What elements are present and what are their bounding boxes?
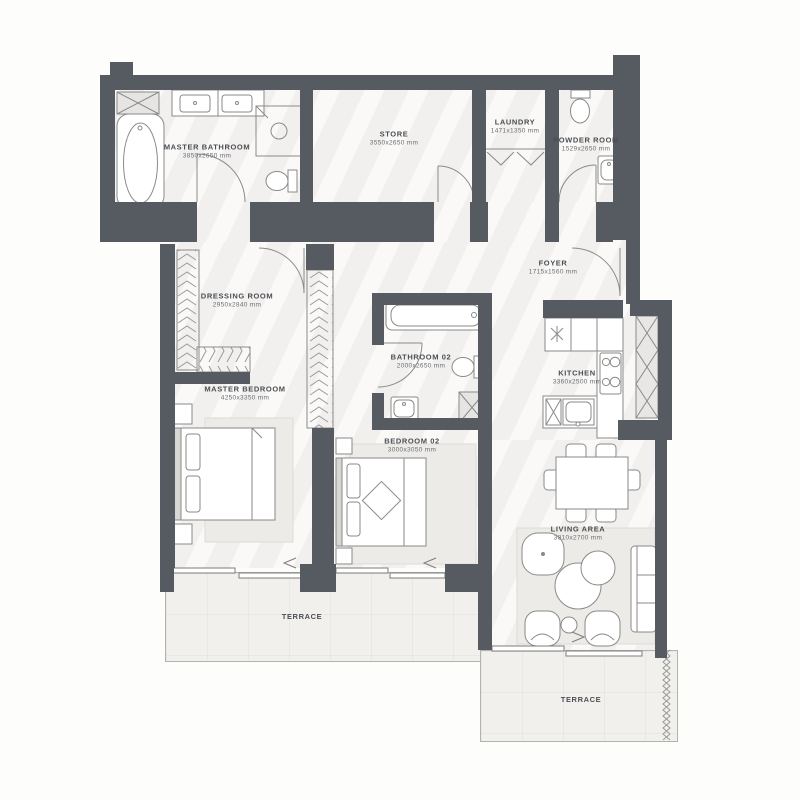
room-label-laundry: LAUNDRY 1471x1350 mm [491, 118, 539, 137]
room-dims: 1715x1560 mm [529, 269, 577, 278]
room-name: LIVING AREA [551, 525, 606, 535]
wall [100, 75, 115, 202]
room-label-terrace-b: TERRACE [561, 695, 601, 705]
wall [545, 202, 559, 242]
wall [110, 75, 613, 90]
room-dims: 4250x3350 mm [204, 395, 285, 404]
room-name: FOYER [529, 259, 577, 269]
room-label-master-bathroom: MASTER BATHROOM 3850x2650 mm [164, 143, 250, 162]
wall [655, 440, 667, 645]
wall [312, 428, 334, 568]
wall-pier [655, 640, 667, 658]
room-name: STORE [370, 130, 418, 140]
room-label-store: STORE 3550x2650 mm [370, 130, 418, 149]
wall [596, 202, 613, 242]
room-label-master-bedroom: MASTER BEDROOM 4250x3350 mm [204, 385, 285, 404]
room-name: MASTER BEDROOM [204, 385, 285, 395]
room-dims: 3810x2700 mm [551, 535, 606, 544]
room-name: DRESSING ROOM [201, 292, 273, 302]
wall [306, 244, 334, 270]
room-name: LAUNDRY [491, 118, 539, 128]
room-name: TERRACE [561, 695, 601, 705]
room-dims: 2950x2840 mm [201, 302, 273, 311]
wall-pier [160, 564, 174, 592]
room-name: MASTER BATHROOM [164, 143, 250, 153]
room-name: TERRACE [282, 612, 322, 622]
room-dims: 3360x2500 mm [553, 379, 601, 388]
wall [160, 244, 175, 568]
room-dims: 3000x3050 mm [384, 447, 440, 456]
wall [618, 420, 672, 440]
wall [470, 202, 488, 242]
wall [478, 293, 492, 650]
wall [372, 293, 490, 305]
room-dims: 3850x2650 mm [164, 153, 250, 162]
room-label-bathroom-02: BATHROOM 02 2000x2650 mm [391, 353, 452, 372]
room-name: BEDROOM 02 [384, 437, 440, 447]
room-label-terrace-a: TERRACE [282, 612, 322, 622]
room-label-foyer: FOYER 1715x1560 mm [529, 259, 577, 278]
room-dims: 1471x1350 mm [491, 128, 539, 137]
wall [658, 300, 672, 440]
wall [472, 90, 486, 202]
wall [250, 202, 312, 242]
room-name: POWDER ROOM [553, 136, 619, 146]
room-dims: 3550x2650 mm [370, 140, 418, 149]
wall [100, 202, 197, 242]
floor-plan: MASTER BATHROOM 3850x2650 mm STORE 3550x… [0, 0, 800, 800]
room-dims: 2000x2650 mm [391, 363, 452, 372]
room-dims: 1529x2650 mm [553, 146, 619, 155]
room-label-bedroom-02: BEDROOM 02 3000x3050 mm [384, 437, 440, 456]
wall [300, 90, 313, 202]
room-name: KITCHEN [553, 369, 601, 379]
room-label-kitchen: KITCHEN 3360x2500 mm [553, 369, 601, 388]
wall [543, 300, 623, 318]
wall-pier [300, 564, 336, 592]
wall [162, 372, 250, 384]
room-label-dressing-room: DRESSING ROOM 2950x2840 mm [201, 292, 273, 311]
room-name: BATHROOM 02 [391, 353, 452, 363]
wall [626, 240, 640, 304]
floor-plan-canvas: MASTER BATHROOM 3850x2650 mm STORE 3550x… [0, 0, 800, 800]
wall [372, 418, 490, 430]
room-label-powder-room: POWDER ROOM 1529x2650 mm [553, 136, 619, 155]
room-label-living-area: LIVING AREA 3810x2700 mm [551, 525, 606, 544]
wall-pier [445, 564, 478, 592]
floor-living [492, 440, 655, 650]
wall [312, 202, 434, 242]
